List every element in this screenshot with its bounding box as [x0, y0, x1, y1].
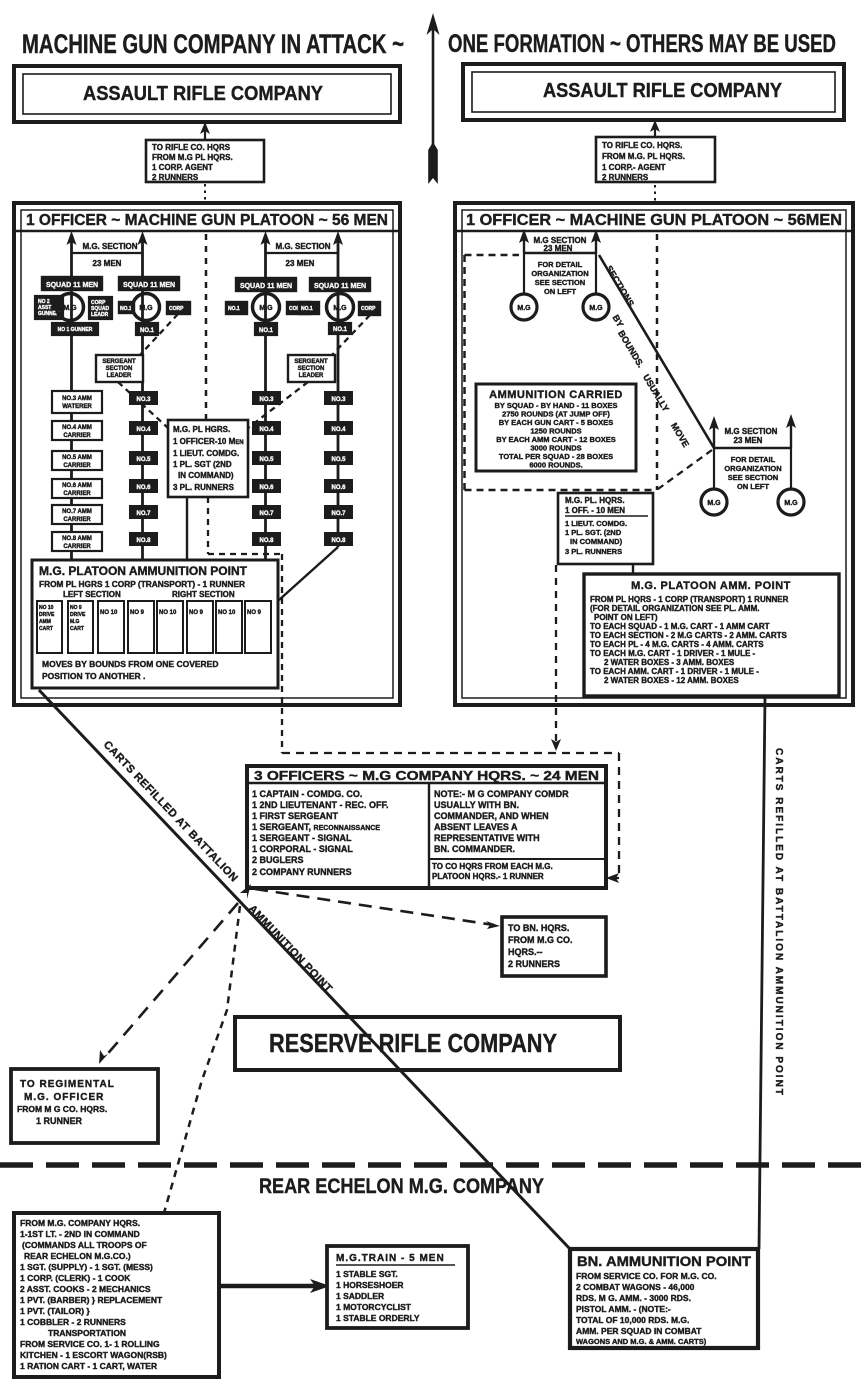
svg-text:MACHINE GUN COMPANY IN ATTACK: MACHINE GUN COMPANY IN ATTACK ~ [22, 29, 404, 59]
svg-text:M.G. PLATOON AMM. POINT: M.G. PLATOON AMM. POINT [631, 580, 791, 592]
svg-text:M.G.TRAIN - 5 MEN: M.G.TRAIN - 5 MEN [336, 1253, 445, 1264]
svg-text:2 WATER BOXES - 12 AMM. BOXES: 2 WATER BOXES - 12 AMM. BOXES [604, 676, 739, 685]
svg-text:1 PL. SGT (2ND: 1 PL. SGT (2ND [173, 460, 232, 469]
svg-text:CARRIER: CARRIER [63, 491, 91, 497]
svg-text:FROM M.G PL HQRS.: FROM M.G PL HQRS. [152, 153, 233, 162]
svg-text:1 MOTORCYCLIST: 1 MOTORCYCLIST [336, 1302, 412, 1312]
svg-text:SECTION: SECTION [298, 366, 325, 372]
svg-text:TO EACH SQUAD - 1 M.G. CART -: TO EACH SQUAD - 1 M.G. CART - 1 AMM CART [590, 622, 770, 631]
svg-text:NO.1: NO.1 [333, 327, 348, 333]
svg-text:SQUAD 11 MEN: SQUAD 11 MEN [314, 283, 366, 290]
svg-text:AMM: AMM [39, 619, 51, 625]
svg-text:1 STABLE SGT.: 1 STABLE SGT. [336, 1269, 398, 1279]
svg-text:1 CORPORAL - SIGNAL: 1 CORPORAL - SIGNAL [252, 844, 353, 854]
svg-text:COMMANDER, AND WHEN: COMMANDER, AND WHEN [434, 811, 549, 821]
svg-text:2 RUNNERS: 2 RUNNERS [152, 173, 199, 182]
svg-text:FOR DETAIL: FOR DETAIL [731, 455, 776, 464]
svg-text:FROM PL HQRS - 1 CORP (TRANSPO: FROM PL HQRS - 1 CORP (TRANSPORT) 1 RUNN… [590, 595, 789, 604]
svg-text:WATERER: WATERER [62, 404, 92, 410]
svg-text:FROM SERVICE CO. FOR M.G. CO.: FROM SERVICE CO. FOR M.G. CO. [576, 1271, 717, 1281]
svg-text:SEE SECTION: SEE SECTION [728, 473, 778, 482]
svg-text:HQRS.--: HQRS.-- [508, 947, 543, 957]
svg-text:1 OFFICER ~ MACHINE GUN PLATOO: 1 OFFICER ~ MACHINE GUN PLATOON ~ 56 MEN [26, 212, 388, 229]
svg-text:RESERVE RIFLE COMPANY: RESERVE RIFLE COMPANY [269, 1028, 557, 1058]
svg-text:TO CO HQRS FROM EACH M.G.: TO CO HQRS FROM EACH M.G. [432, 862, 553, 871]
svg-text:M.G: M.G [784, 500, 798, 507]
svg-text:NO 9: NO 9 [189, 610, 204, 616]
svg-text:1 RATION CART - 1 CART, WATER: 1 RATION CART - 1 CART, WATER [20, 1361, 157, 1371]
svg-text:AMMUNITION CARRIED: AMMUNITION CARRIED [489, 389, 623, 401]
svg-text:2 ASST. COOKS - 2 MECHANICS: 2 ASST. COOKS - 2 MECHANICS [20, 1284, 151, 1294]
svg-text:IN COMMAND): IN COMMAND) [570, 537, 623, 546]
svg-text:SQUAD 11 MEN: SQUAD 11 MEN [123, 282, 175, 289]
svg-text:NO.1: NO.1 [140, 328, 155, 334]
svg-text:NO.4: NO.4 [331, 427, 346, 433]
svg-text:NO.5: NO.5 [259, 457, 274, 463]
svg-text:PLATOON HQRS.- 1 RUNNER: PLATOON HQRS.- 1 RUNNER [432, 872, 544, 881]
svg-text:2 WATER BOXES - 3 AMM. BOXES: 2 WATER BOXES - 3 AMM. BOXES [604, 658, 735, 667]
svg-text:FROM SERVICE CO. 1- 1 ROLLING: FROM SERVICE CO. 1- 1 ROLLING [20, 1339, 160, 1349]
svg-text:NO 10: NO 10 [39, 605, 54, 611]
svg-text:ABSENT LEAVES A: ABSENT LEAVES A [434, 822, 518, 832]
svg-text:NO 10: NO 10 [218, 610, 236, 616]
svg-text:RDS. M G. AMM. - 3000 RDS.: RDS. M G. AMM. - 3000 RDS. [576, 1293, 691, 1303]
svg-text:NO.3: NO.3 [136, 397, 151, 403]
svg-text:1-1ST LT. - 2ND IN COMMAND: 1-1ST LT. - 2ND IN COMMAND [20, 1229, 140, 1239]
svg-text:MOVES BY BOUNDS FROM ONE COVER: MOVES BY BOUNDS FROM ONE COVERED [42, 659, 218, 669]
svg-text:1 PL. SGT. (2ND: 1 PL. SGT. (2ND [565, 528, 622, 537]
svg-text:NO.5: NO.5 [331, 457, 346, 463]
svg-text:FROM M.G CO.: FROM M.G CO. [508, 935, 573, 945]
svg-text:NO.7: NO.7 [331, 511, 346, 517]
svg-text:(FOR DETAIL ORGANIZATION SEE P: (FOR DETAIL ORGANIZATION SEE PL. AMM. [590, 604, 759, 613]
svg-text:ORGANIZATION: ORGANIZATION [724, 464, 781, 473]
svg-text:ASSAULT RIFLE COMPANY: ASSAULT RIFLE COMPANY [83, 83, 324, 105]
svg-text:1 OFFICER ~ MACHINE GUN PLATOO: 1 OFFICER ~ MACHINE GUN PLATOON ~ 56MEN [466, 212, 842, 229]
svg-text:TO EACH SECTION - 2 M.G CARTS: TO EACH SECTION - 2 M.G CARTS - 2 AMM. C… [590, 631, 788, 640]
svg-text:FOR DETAIL: FOR DETAIL [538, 260, 583, 269]
svg-text:6000 ROUNDS.: 6000 ROUNDS. [529, 461, 582, 470]
svg-text:NO.1: NO.1 [120, 306, 132, 312]
svg-text:NO.7 AMM: NO.7 AMM [62, 509, 92, 515]
svg-text:DRIVE: DRIVE [39, 612, 55, 618]
svg-text:NO 10: NO 10 [100, 610, 118, 616]
svg-text:TO EACH M.G. CART - 1 DRIVER -: TO EACH M.G. CART - 1 DRIVER - 1 MULE - [590, 649, 756, 658]
svg-text:NO.6: NO.6 [259, 485, 274, 491]
svg-text:M.G: M.G [70, 619, 80, 625]
svg-text:23 MEN: 23 MEN [734, 436, 763, 445]
svg-text:USUALLY WITH BN.: USUALLY WITH BN. [434, 800, 519, 810]
svg-text:M.G: M.G [707, 500, 721, 507]
svg-text:LEADR: LEADR [91, 312, 109, 318]
svg-text:M.G. SECTION: M.G. SECTION [82, 242, 137, 251]
svg-text:LEADER: LEADER [107, 373, 132, 379]
svg-text:NO.5: NO.5 [136, 457, 151, 463]
svg-text:NO.1: NO.1 [259, 328, 274, 334]
svg-text:ON LEFT: ON LEFT [737, 482, 769, 491]
svg-text:NO 9: NO 9 [70, 605, 82, 611]
svg-text:1 2ND LIEUTENANT - REC. OFF.: 1 2ND LIEUTENANT - REC. OFF. [252, 800, 389, 810]
svg-text:TO EACH PL - 4 M.G. CARTS - 4: TO EACH PL - 4 M.G. CARTS - 4 AMM. CARTS [590, 640, 764, 649]
svg-text:NO.3: NO.3 [259, 397, 274, 403]
svg-text:2 RUNNERS: 2 RUNNERS [602, 173, 649, 182]
svg-text:NO.7: NO.7 [259, 511, 274, 517]
svg-text:1 RUNNER: 1 RUNNER [36, 1116, 83, 1126]
svg-text:TO EACH AMM. CART - 1 DRIVER -: TO EACH AMM. CART - 1 DRIVER - 1 MULE - [590, 667, 759, 676]
svg-text:SEE SECTION: SEE SECTION [535, 278, 585, 287]
svg-text:1 SGT. (SUPPLY) - 1 SGT. (MESS: 1 SGT. (SUPPLY) - 1 SGT. (MESS) [20, 1262, 153, 1272]
svg-text:M.G: M.G [333, 305, 347, 312]
svg-text:NO.1: NO.1 [301, 306, 313, 312]
svg-text:(COMMANDS ALL TROOPS OF: (COMMANDS ALL TROOPS OF [22, 1240, 147, 1250]
svg-text:NO.6 AMM: NO.6 AMM [62, 483, 92, 489]
svg-text:LEFT SECTION: LEFT SECTION [63, 590, 121, 599]
svg-text:CARRIER: CARRIER [63, 433, 91, 439]
svg-text:1 PVT. (BARBER) } REPLACEMENT: 1 PVT. (BARBER) } REPLACEMENT [20, 1295, 163, 1305]
svg-text:PISTOL AMM. - (NOTE:-: PISTOL AMM. - (NOTE:- [576, 1304, 671, 1314]
svg-text:NO.4: NO.4 [136, 427, 151, 433]
svg-text:23 MEN: 23 MEN [286, 259, 315, 268]
svg-text:TO RIFLE CO. HQRS: TO RIFLE CO. HQRS [152, 143, 231, 152]
svg-text:LEADER: LEADER [299, 373, 324, 379]
svg-text:M.G: M.G [259, 305, 273, 312]
svg-text:1 COBBLER - 2 RUNNERS: 1 COBBLER - 2 RUNNERS [20, 1317, 126, 1327]
svg-text:FROM M.G. COMPANY HQRS.: FROM M.G. COMPANY HQRS. [20, 1218, 140, 1228]
svg-text:23 MEN: 23 MEN [544, 244, 573, 253]
svg-text:2 BUGLERS: 2 BUGLERS [252, 855, 304, 865]
svg-text:POSITION TO ANOTHER .: POSITION TO ANOTHER . [42, 671, 145, 681]
svg-text:M.G: M.G [63, 305, 77, 312]
svg-text:3 PL. RUNNERS: 3 PL. RUNNERS [173, 483, 235, 492]
svg-text:1 SERGEANT - SIGNAL: 1 SERGEANT - SIGNAL [252, 833, 352, 843]
svg-text:1 CORP. (CLERK) - 1 COOK: 1 CORP. (CLERK) - 1 COOK [20, 1273, 131, 1283]
svg-text:3 OFFICERS ~ M.G COMPANY HQRS.: 3 OFFICERS ~ M.G COMPANY HQRS. ~ 24 MEN [254, 769, 599, 783]
svg-text:CART: CART [39, 626, 53, 632]
svg-text:2 COMPANY RUNNERS: 2 COMPANY RUNNERS [252, 867, 352, 877]
svg-text:REAR ECHELON M.G.CO.): REAR ECHELON M.G.CO.) [24, 1251, 131, 1261]
svg-text:TOTAL OF 10,000 RDS. M.G.: TOTAL OF 10,000 RDS. M.G. [576, 1315, 689, 1325]
svg-text:1 OFF. - 10 MEN: 1 OFF. - 10 MEN [565, 506, 625, 515]
svg-text:CARRIER: CARRIER [63, 463, 91, 469]
svg-text:NO.8: NO.8 [331, 538, 346, 544]
svg-text:CORP: CORP [169, 306, 184, 312]
svg-text:M.G SECTION: M.G SECTION [725, 427, 778, 436]
svg-text:TO RIFLE CO. HQRS.: TO RIFLE CO. HQRS. [602, 141, 682, 150]
svg-text:NO.5 AMM: NO.5 AMM [62, 455, 92, 461]
svg-text:TRANSPORTATION: TRANSPORTATION [48, 1328, 126, 1338]
svg-text:CART: CART [70, 626, 84, 632]
svg-text:SERGEANT: SERGEANT [294, 359, 328, 365]
svg-text:M.G. SECTION: M.G. SECTION [275, 242, 330, 251]
svg-text:1 SADDLER: 1 SADDLER [336, 1291, 384, 1301]
svg-text:FROM M G CO. HQRS.: FROM M G CO. HQRS. [17, 1104, 107, 1114]
svg-text:NO.6: NO.6 [331, 485, 346, 491]
svg-text:ON LEFT: ON LEFT [544, 287, 576, 296]
svg-text:RIGHT SECTION: RIGHT SECTION [172, 590, 235, 599]
svg-text:ORGANIZATION: ORGANIZATION [531, 269, 588, 278]
svg-text:NO 10: NO 10 [159, 610, 177, 616]
svg-text:NO.8: NO.8 [259, 538, 274, 544]
svg-text:1 HORSESHOER: 1 HORSESHOER [336, 1280, 404, 1290]
svg-text:CARRIER: CARRIER [63, 544, 91, 550]
svg-text:SECTION: SECTION [106, 366, 133, 372]
svg-text:2 RUNNERS: 2 RUNNERS [508, 959, 560, 969]
svg-text:WAGONS AND M.G. & AMM. CARTS): WAGONS AND M.G. & AMM. CARTS) [576, 1337, 707, 1346]
svg-text:M.G: M.G [589, 305, 603, 312]
svg-text:NO 9: NO 9 [247, 610, 262, 616]
svg-text:FROM PL HGRS 1 CORP (TRANSPORT: FROM PL HGRS 1 CORP (TRANSPORT) - 1 RUNN… [39, 580, 245, 589]
svg-text:BN. COMMANDER.: BN. COMMANDER. [434, 844, 515, 854]
svg-text:M.G: M.G [517, 305, 531, 312]
svg-text:NO.3 AMM: NO.3 AMM [62, 396, 92, 402]
svg-text:NO.6: NO.6 [136, 485, 151, 491]
svg-text:DRIVE: DRIVE [70, 612, 86, 618]
svg-text:1 FIRST SERGEANT: 1 FIRST SERGEANT [252, 811, 339, 821]
svg-text:NO 1 GUNNER: NO 1 GUNNER [58, 327, 93, 333]
svg-text:M.G. OFFICER: M.G. OFFICER [24, 1092, 104, 1103]
svg-text:REPRESENTATIVE WITH: REPRESENTATIVE WITH [434, 833, 540, 843]
svg-text:1 OFFICER-10 MEN: 1 OFFICER-10 MEN [173, 437, 244, 446]
svg-text:NO.8: NO.8 [136, 538, 151, 544]
svg-text:KITCHEN - 1 ESCORT WAGON(RSB): KITCHEN - 1 ESCORT WAGON(RSB) [20, 1350, 167, 1360]
svg-text:CARRIER: CARRIER [63, 517, 91, 523]
svg-text:SERGEANT: SERGEANT [102, 359, 136, 365]
svg-text:2 COMBAT WAGONS - 46,000: 2 COMBAT WAGONS - 46,000 [576, 1282, 695, 1292]
svg-text:TO BN. HQRS.: TO BN. HQRS. [508, 923, 569, 933]
svg-text:M.G. PLATOON AMMUNITION POINT: M.G. PLATOON AMMUNITION POINT [39, 566, 247, 578]
svg-text:3 PL. RUNNERS: 3 PL. RUNNERS [565, 547, 622, 556]
svg-text:FROM M.G. PL HQRS.: FROM M.G. PL HQRS. [602, 152, 685, 161]
svg-text:CARTS REFILLED AT BATTALION A: CARTS REFILLED AT BATTALION AMMUNITION P… [773, 748, 784, 1097]
svg-text:POINT ON LEFT): POINT ON LEFT) [594, 613, 658, 622]
svg-text:BN. AMMUNITION POINT: BN. AMMUNITION POINT [577, 1254, 752, 1269]
svg-text:ASSAULT RIFLE COMPANY: ASSAULT RIFLE COMPANY [543, 80, 783, 102]
svg-text:CORP: CORP [361, 306, 376, 312]
svg-text:NO.4: NO.4 [259, 427, 274, 433]
svg-text:NO.3: NO.3 [331, 397, 346, 403]
svg-text:1 STABLE ORDERLY: 1 STABLE ORDERLY [336, 1313, 420, 1323]
svg-text:M.G. PL HGRS.: M.G. PL HGRS. [173, 425, 230, 434]
svg-text:NO.4 AMM: NO.4 AMM [62, 425, 92, 431]
svg-text:1 CORP.- AGENT: 1 CORP.- AGENT [602, 163, 666, 172]
svg-text:NO.1: NO.1 [228, 306, 240, 312]
svg-text:IN COMMAND): IN COMMAND) [178, 471, 234, 480]
svg-text:1 CAPTAIN - COMDG. CO.: 1 CAPTAIN - COMDG. CO. [252, 789, 362, 799]
svg-text:1 LIEUT. COMDG.: 1 LIEUT. COMDG. [565, 519, 627, 528]
svg-text:1 PVT. (TAILOR) }: 1 PVT. (TAILOR) } [20, 1306, 90, 1316]
svg-text:NO 9: NO 9 [130, 610, 145, 616]
svg-text:TO REGIMENTAL: TO REGIMENTAL [20, 1079, 115, 1090]
svg-text:SQUAD 11 MEN: SQUAD 11 MEN [240, 283, 292, 290]
svg-text:M.G: M.G [139, 305, 153, 312]
svg-text:NOTE:- M G COMPANY COMDR: NOTE:- M G COMPANY COMDR [434, 789, 569, 799]
svg-text:NO.7: NO.7 [136, 511, 151, 517]
svg-text:1 LIEUT. COMDG.: 1 LIEUT. COMDG. [173, 449, 239, 458]
svg-text:1 CORP. AGENT: 1 CORP. AGENT [152, 163, 213, 172]
svg-text:23 MEN: 23 MEN [93, 259, 122, 268]
svg-text:NO.8 AMM: NO.8 AMM [62, 536, 92, 542]
svg-text:M.G. PL. HQRS.: M.G. PL. HQRS. [565, 496, 625, 505]
svg-text:ONE FORMATION ~ OTHERS MAY BE: ONE FORMATION ~ OTHERS MAY BE USED [448, 30, 836, 58]
svg-text:SQUAD 11 MEN: SQUAD 11 MEN [46, 282, 98, 289]
svg-text:AMM. PER SQUAD IN COMBAT: AMM. PER SQUAD IN COMBAT [576, 1326, 702, 1336]
